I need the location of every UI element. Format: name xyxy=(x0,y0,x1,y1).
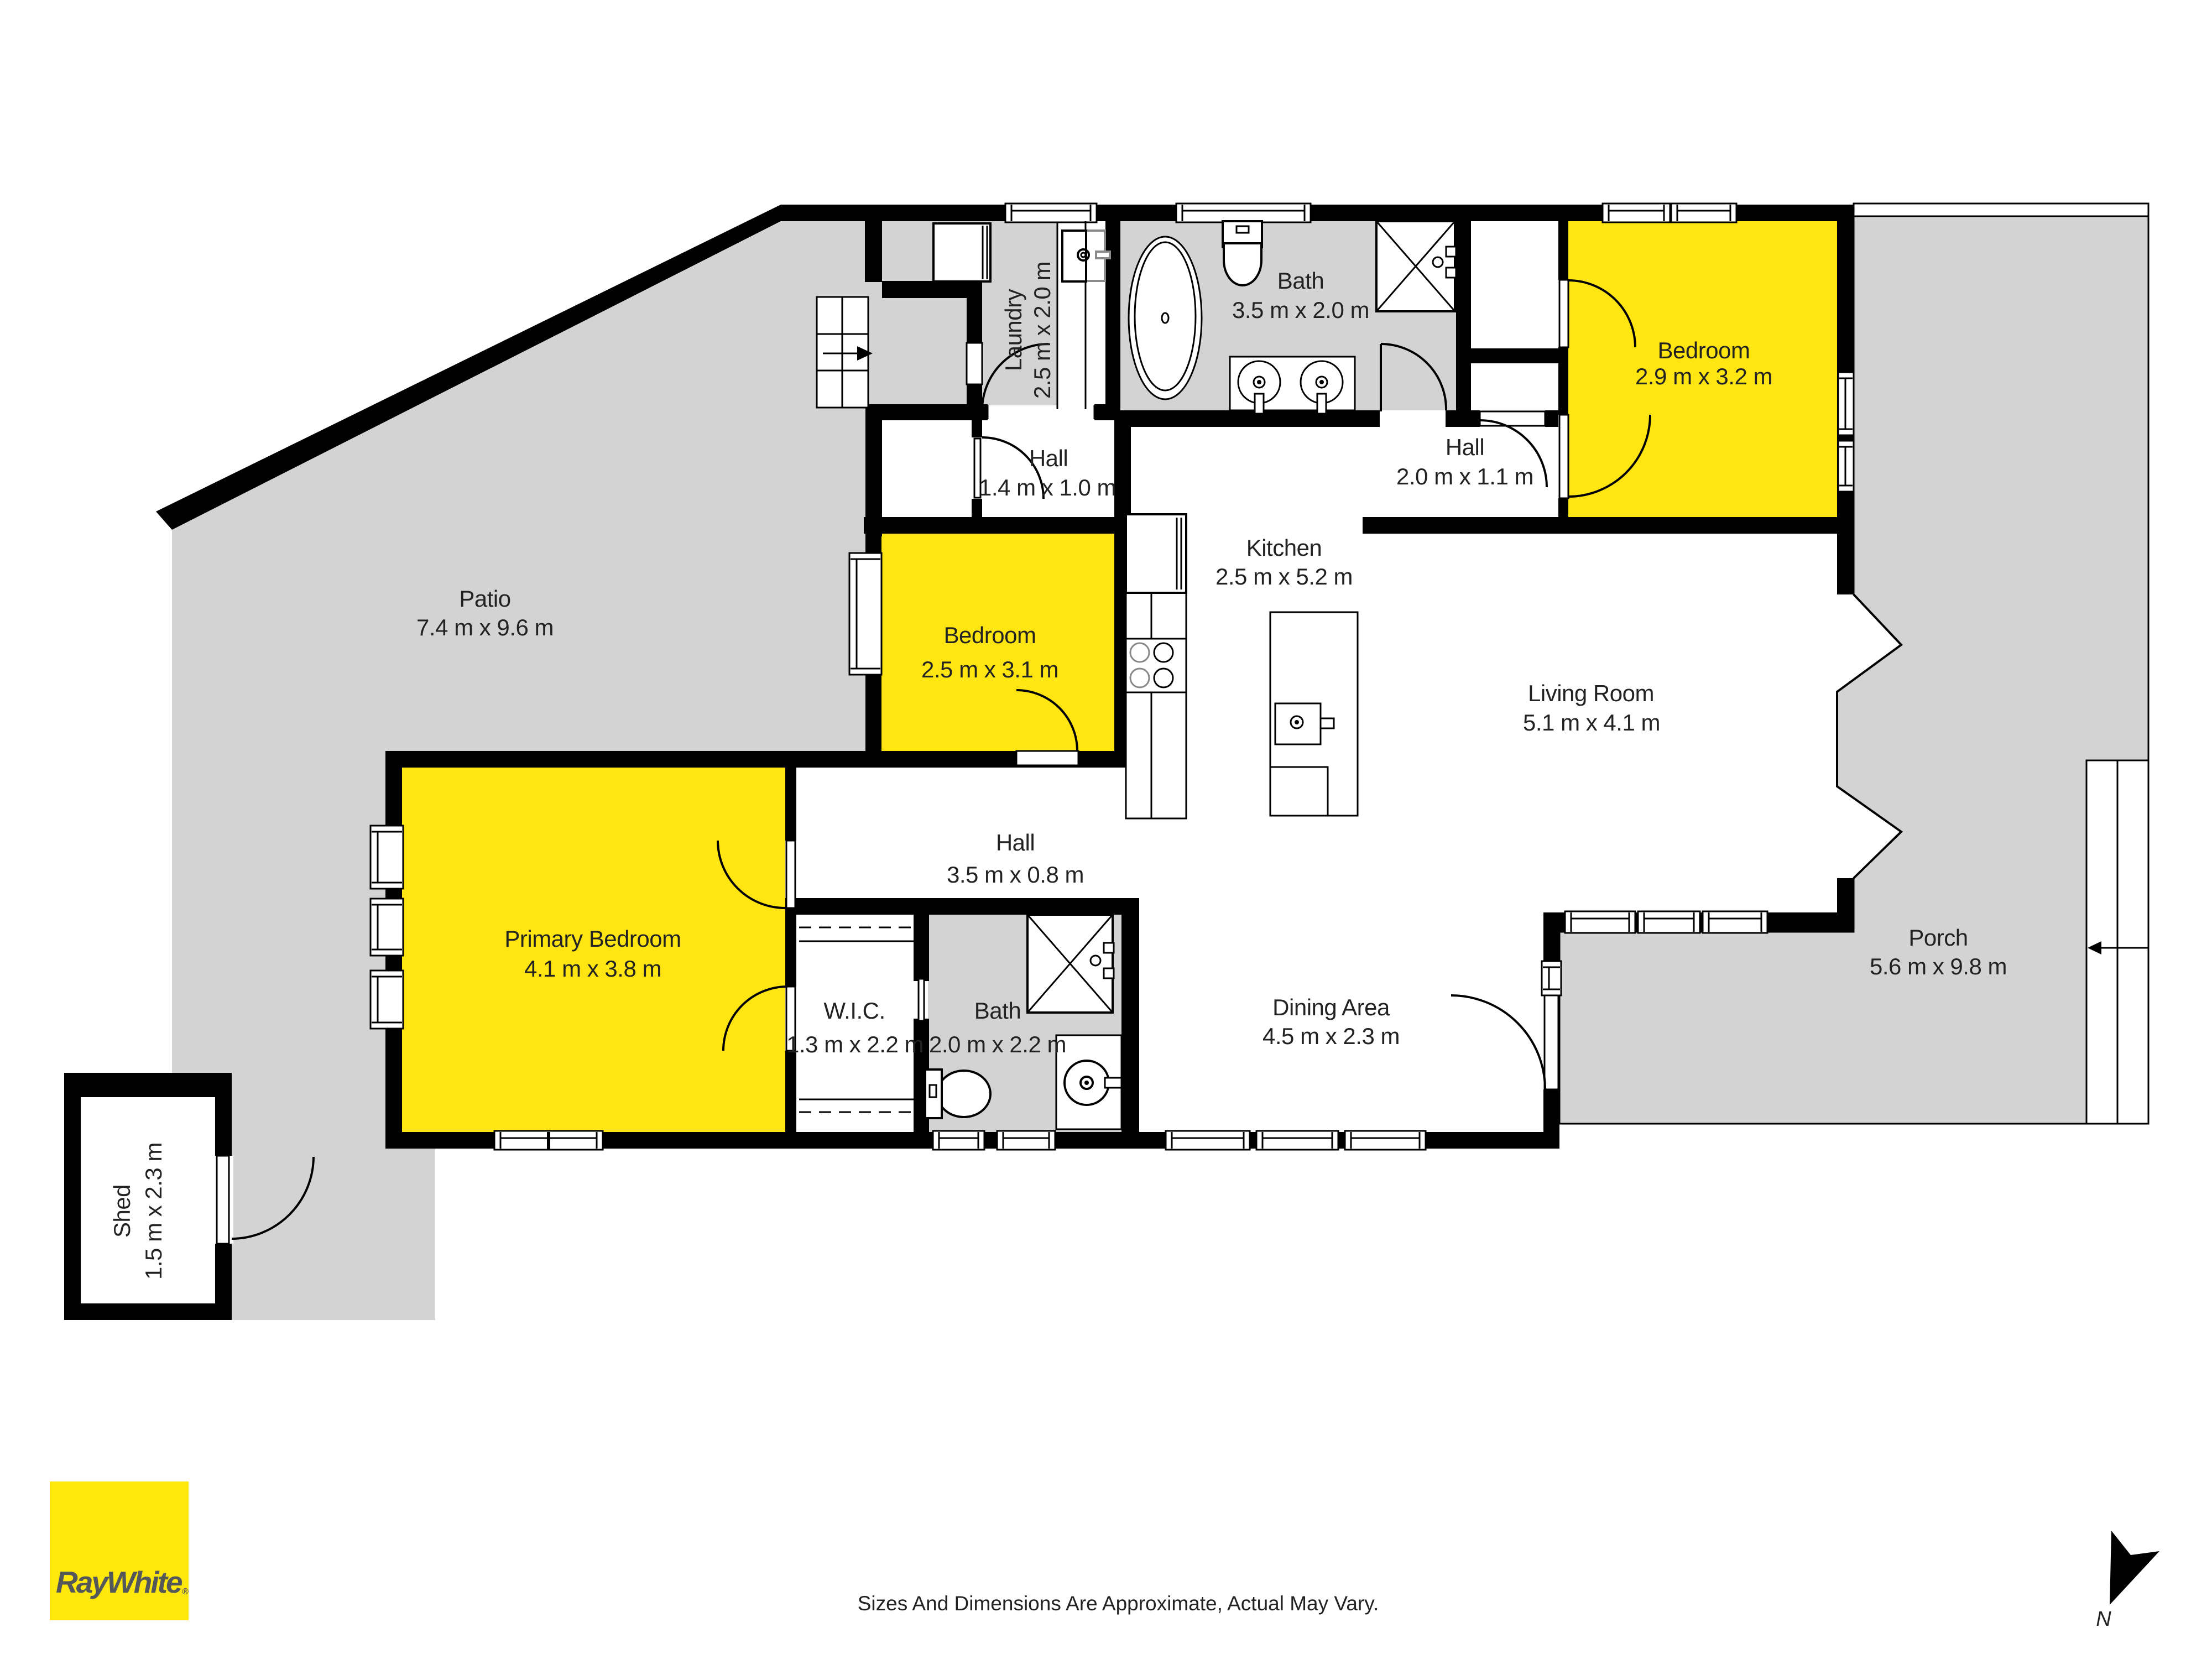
svg-text:N: N xyxy=(2096,1608,2111,1631)
svg-text:5.1 m x 4.1 m: 5.1 m x 4.1 m xyxy=(1523,709,1660,735)
svg-text:Hall: Hall xyxy=(996,830,1035,855)
svg-text:W.I.C.: W.I.C. xyxy=(823,998,885,1024)
svg-text:Sizes And Dimensions Are Appro: Sizes And Dimensions Are Approximate, Ac… xyxy=(858,1592,1379,1615)
svg-text:Hall: Hall xyxy=(1446,434,1484,460)
svg-text:Hall: Hall xyxy=(1029,445,1068,471)
svg-text:5.6 m x 9.8 m: 5.6 m x 9.8 m xyxy=(1870,953,2007,979)
svg-text:3.5 m x 2.0 m: 3.5 m x 2.0 m xyxy=(1232,297,1369,323)
svg-text:Kitchen: Kitchen xyxy=(1246,535,1322,561)
svg-text:2.5 m x 5.2 m: 2.5 m x 5.2 m xyxy=(1215,564,1353,589)
svg-text:4.1 m x 3.8 m: 4.1 m x 3.8 m xyxy=(524,956,661,982)
svg-text:2.9 m x 3.2 m: 2.9 m x 3.2 m xyxy=(1635,363,1772,389)
svg-text:2.5 m x 2.0 m: 2.5 m x 2.0 m xyxy=(1029,262,1055,399)
svg-text:Primary Bedroom: Primary Bedroom xyxy=(504,926,681,952)
svg-text:Bedroom: Bedroom xyxy=(1658,337,1750,363)
svg-text:Bath: Bath xyxy=(1277,268,1324,294)
svg-text:RayWhite: RayWhite xyxy=(56,1565,182,1599)
svg-text:Dining Area: Dining Area xyxy=(1272,994,1390,1020)
svg-text:3.5 m x 0.8 m: 3.5 m x 0.8 m xyxy=(947,862,1084,888)
svg-text:Patio: Patio xyxy=(459,586,510,612)
svg-text:Laundry: Laundry xyxy=(1000,289,1026,371)
svg-text:1.4 m x 1.0 m: 1.4 m x 1.0 m xyxy=(979,474,1116,500)
svg-text:2.5 m x 3.1 m: 2.5 m x 3.1 m xyxy=(921,656,1058,682)
svg-text:2.0 m x 2.2 m: 2.0 m x 2.2 m xyxy=(929,1031,1066,1057)
svg-text:Living Room: Living Room xyxy=(1528,680,1654,706)
svg-text:®: ® xyxy=(182,1587,189,1597)
svg-text:7.4 m x 9.6 m: 7.4 m x 9.6 m xyxy=(416,614,554,640)
svg-text:Bath: Bath xyxy=(974,998,1021,1024)
svg-text:4.5 m x 2.3 m: 4.5 m x 2.3 m xyxy=(1262,1023,1400,1049)
svg-text:Porch: Porch xyxy=(1908,925,1968,951)
svg-text:Bedroom: Bedroom xyxy=(944,622,1036,648)
svg-text:1.3 m x 2.2 m: 1.3 m x 2.2 m xyxy=(786,1031,924,1057)
svg-text:Shed: Shed xyxy=(109,1185,135,1238)
svg-text:2.0 m x 1.1 m: 2.0 m x 1.1 m xyxy=(1396,463,1533,489)
svg-text:1.5 m x 2.3 m: 1.5 m x 2.3 m xyxy=(140,1142,166,1280)
